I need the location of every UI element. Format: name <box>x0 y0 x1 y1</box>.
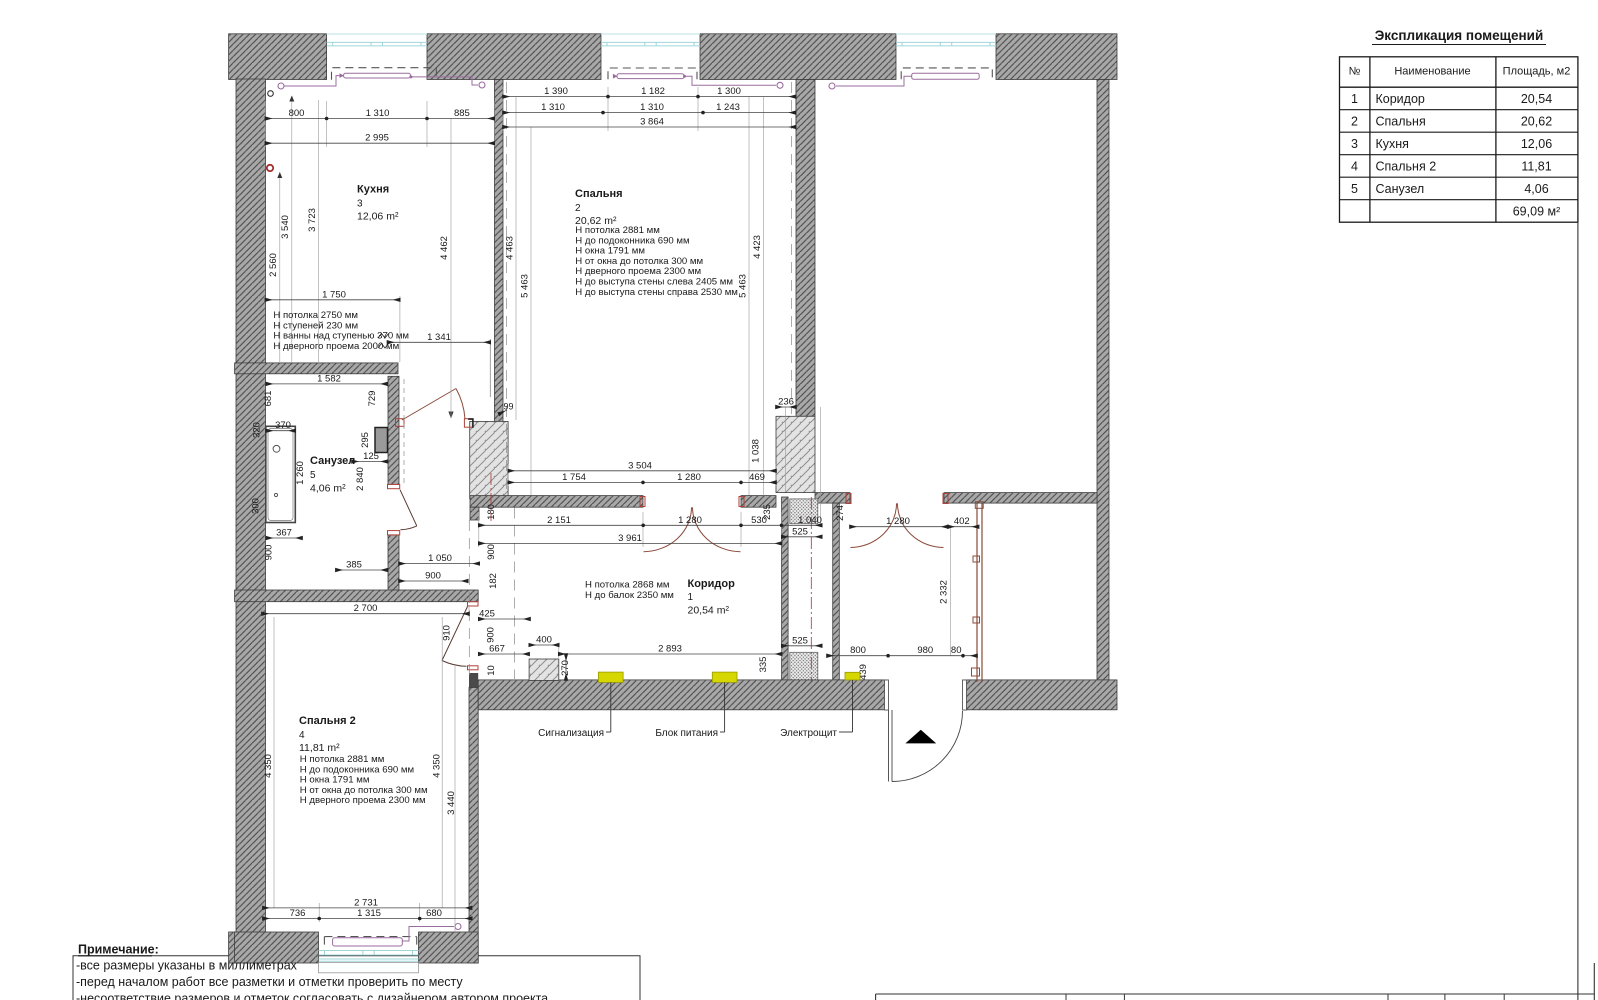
svg-text:681: 681 <box>263 391 274 407</box>
svg-text:729: 729 <box>367 391 378 407</box>
svg-text:Сигнализация: Сигнализация <box>538 728 604 739</box>
svg-text:1 300: 1 300 <box>717 86 741 97</box>
svg-text:1 280: 1 280 <box>677 472 701 483</box>
svg-text:4 350: 4 350 <box>432 754 443 778</box>
svg-text:Блок питания: Блок питания <box>655 728 718 739</box>
svg-text:Площадь, м2: Площадь, м2 <box>1503 65 1571 77</box>
svg-text:3 504: 3 504 <box>628 460 652 471</box>
svg-text:4,06 m²: 4,06 m² <box>310 483 346 495</box>
svg-text:11,81 m²: 11,81 m² <box>299 742 340 754</box>
svg-text:Коридор: Коридор <box>1376 92 1425 106</box>
svg-text:-несоответствие размеров и отм: -несоответствие размеров и отметок согла… <box>76 992 548 1000</box>
svg-text:5: 5 <box>1351 182 1358 196</box>
svg-text:Санузел: Санузел <box>310 455 355 467</box>
svg-text:910: 910 <box>442 625 453 641</box>
svg-text:1 182: 1 182 <box>641 86 665 97</box>
svg-text:-все размеры указаны в миллиме: -все размеры указаны в миллиметрах <box>76 959 298 973</box>
svg-text:4: 4 <box>299 730 305 741</box>
svg-text:800: 800 <box>289 108 305 119</box>
svg-text:Н до балок 2350 мм: Н до балок 2350 мм <box>585 590 674 601</box>
svg-text:525: 525 <box>792 526 808 537</box>
svg-text:20,54 m²: 20,54 m² <box>688 605 730 617</box>
svg-text:3 440: 3 440 <box>446 791 457 815</box>
svg-text:99: 99 <box>503 402 513 412</box>
svg-text:295: 295 <box>360 432 371 448</box>
svg-text:3: 3 <box>1351 137 1358 151</box>
svg-text:3 864: 3 864 <box>640 117 664 128</box>
svg-text:3 540: 3 540 <box>280 215 291 239</box>
svg-text:1: 1 <box>1351 92 1358 106</box>
svg-text:10: 10 <box>486 665 497 676</box>
svg-text:Кухня: Кухня <box>357 184 389 196</box>
svg-text:11,81: 11,81 <box>1521 159 1551 173</box>
svg-text:Спальня 2: Спальня 2 <box>299 715 356 727</box>
svg-text:900: 900 <box>486 544 497 560</box>
svg-text:Н дверного проема 2300 мм: Н дверного проема 2300 мм <box>300 795 426 806</box>
svg-text:900: 900 <box>264 545 275 561</box>
svg-text:1 038: 1 038 <box>751 439 762 463</box>
svg-text:1 280: 1 280 <box>886 516 910 527</box>
svg-text:Экспликация помещений: Экспликация помещений <box>1375 28 1544 43</box>
svg-text:1 754: 1 754 <box>562 472 586 483</box>
svg-text:1 310: 1 310 <box>541 102 565 113</box>
svg-text:5: 5 <box>310 470 316 481</box>
svg-text:Спальня: Спальня <box>575 188 623 200</box>
svg-text:1 341: 1 341 <box>427 332 451 343</box>
svg-text:274: 274 <box>835 505 846 521</box>
svg-text:69,09 м²: 69,09 м² <box>1513 204 1561 218</box>
svg-text:Н до выступа стены справа 2530: Н до выступа стены справа 2530 мм <box>575 287 738 298</box>
svg-text:270: 270 <box>560 660 571 676</box>
svg-text:1 310: 1 310 <box>366 108 390 119</box>
svg-text:320: 320 <box>252 422 263 438</box>
svg-text:425: 425 <box>479 609 495 620</box>
svg-text:4,06: 4,06 <box>1524 182 1548 196</box>
svg-text:2 700: 2 700 <box>354 603 378 614</box>
svg-text:4 462: 4 462 <box>439 236 450 260</box>
svg-text:1: 1 <box>688 592 694 603</box>
svg-text:900: 900 <box>425 571 441 582</box>
svg-text:469: 469 <box>749 472 765 483</box>
svg-text:885: 885 <box>454 108 470 119</box>
svg-text:4 350: 4 350 <box>263 754 274 778</box>
svg-text:3 961: 3 961 <box>618 533 642 544</box>
svg-text:1 315: 1 315 <box>357 908 381 919</box>
svg-text:1 260: 1 260 <box>295 461 306 485</box>
svg-text:-перед началом работ все разме: -перед началом работ все разметки и отме… <box>76 975 463 989</box>
svg-text:4 463: 4 463 <box>505 236 516 260</box>
svg-text:182: 182 <box>488 573 499 589</box>
svg-text:2 840: 2 840 <box>355 467 366 491</box>
svg-text:20,54: 20,54 <box>1521 92 1552 106</box>
svg-text:Н дверного проема 2000 мм: Н дверного проема 2000 мм <box>273 341 399 352</box>
svg-text:125: 125 <box>363 451 379 462</box>
svg-text:900: 900 <box>486 627 497 643</box>
svg-text:1 390: 1 390 <box>544 86 568 97</box>
svg-text:736: 736 <box>290 908 306 919</box>
svg-text:Коридор: Коридор <box>688 578 736 590</box>
svg-text:2 332: 2 332 <box>939 580 950 604</box>
svg-text:3 723: 3 723 <box>307 208 318 232</box>
svg-text:12,06 m²: 12,06 m² <box>357 211 399 223</box>
svg-text:80: 80 <box>951 645 962 656</box>
svg-text:1 243: 1 243 <box>716 102 740 113</box>
svg-text:5 463: 5 463 <box>520 274 531 298</box>
svg-text:300: 300 <box>251 498 262 514</box>
svg-text:№: № <box>1349 65 1361 77</box>
svg-text:1 582: 1 582 <box>317 373 341 384</box>
svg-text:2 995: 2 995 <box>365 133 389 144</box>
svg-text:2 151: 2 151 <box>547 515 571 526</box>
svg-text:180: 180 <box>486 504 497 520</box>
svg-text:385: 385 <box>346 560 362 571</box>
svg-text:1 310: 1 310 <box>640 102 664 113</box>
svg-text:2 560: 2 560 <box>268 253 279 277</box>
svg-text:2: 2 <box>575 203 581 214</box>
svg-text:236: 236 <box>778 397 794 408</box>
svg-text:Примечание:: Примечание: <box>78 943 159 957</box>
svg-text:2: 2 <box>1351 114 1358 128</box>
svg-text:980: 980 <box>917 645 933 656</box>
svg-text:1 050: 1 050 <box>428 553 452 564</box>
svg-text:800: 800 <box>850 645 866 656</box>
svg-text:680: 680 <box>426 908 442 919</box>
svg-text:4: 4 <box>1351 159 1358 173</box>
svg-text:2 731: 2 731 <box>354 897 378 908</box>
svg-text:Кухня: Кухня <box>1376 137 1409 151</box>
svg-text:2 893: 2 893 <box>658 644 682 655</box>
svg-text:370: 370 <box>275 420 291 431</box>
svg-text:335: 335 <box>758 657 769 673</box>
svg-text:Спальня: Спальня <box>1376 114 1426 128</box>
svg-text:Спальня 2: Спальня 2 <box>1376 159 1437 173</box>
svg-text:530: 530 <box>751 515 767 526</box>
svg-text:525: 525 <box>792 635 808 646</box>
svg-text:367: 367 <box>276 528 292 539</box>
svg-text:Наименование: Наименование <box>1394 65 1470 77</box>
svg-text:20,62: 20,62 <box>1521 114 1552 128</box>
svg-text:4 423: 4 423 <box>752 235 763 259</box>
svg-text:667: 667 <box>489 644 505 655</box>
svg-text:Электрощит: Электрощит <box>780 728 837 739</box>
svg-text:1 280: 1 280 <box>678 515 702 526</box>
svg-text:402: 402 <box>954 516 970 527</box>
svg-text:5 463: 5 463 <box>738 274 749 298</box>
svg-text:1 750: 1 750 <box>322 289 346 300</box>
svg-text:12,06: 12,06 <box>1521 137 1552 151</box>
svg-text:1 040: 1 040 <box>798 515 822 526</box>
svg-text:400: 400 <box>536 635 552 646</box>
svg-text:3: 3 <box>357 199 363 210</box>
svg-text:Санузел: Санузел <box>1376 182 1425 196</box>
